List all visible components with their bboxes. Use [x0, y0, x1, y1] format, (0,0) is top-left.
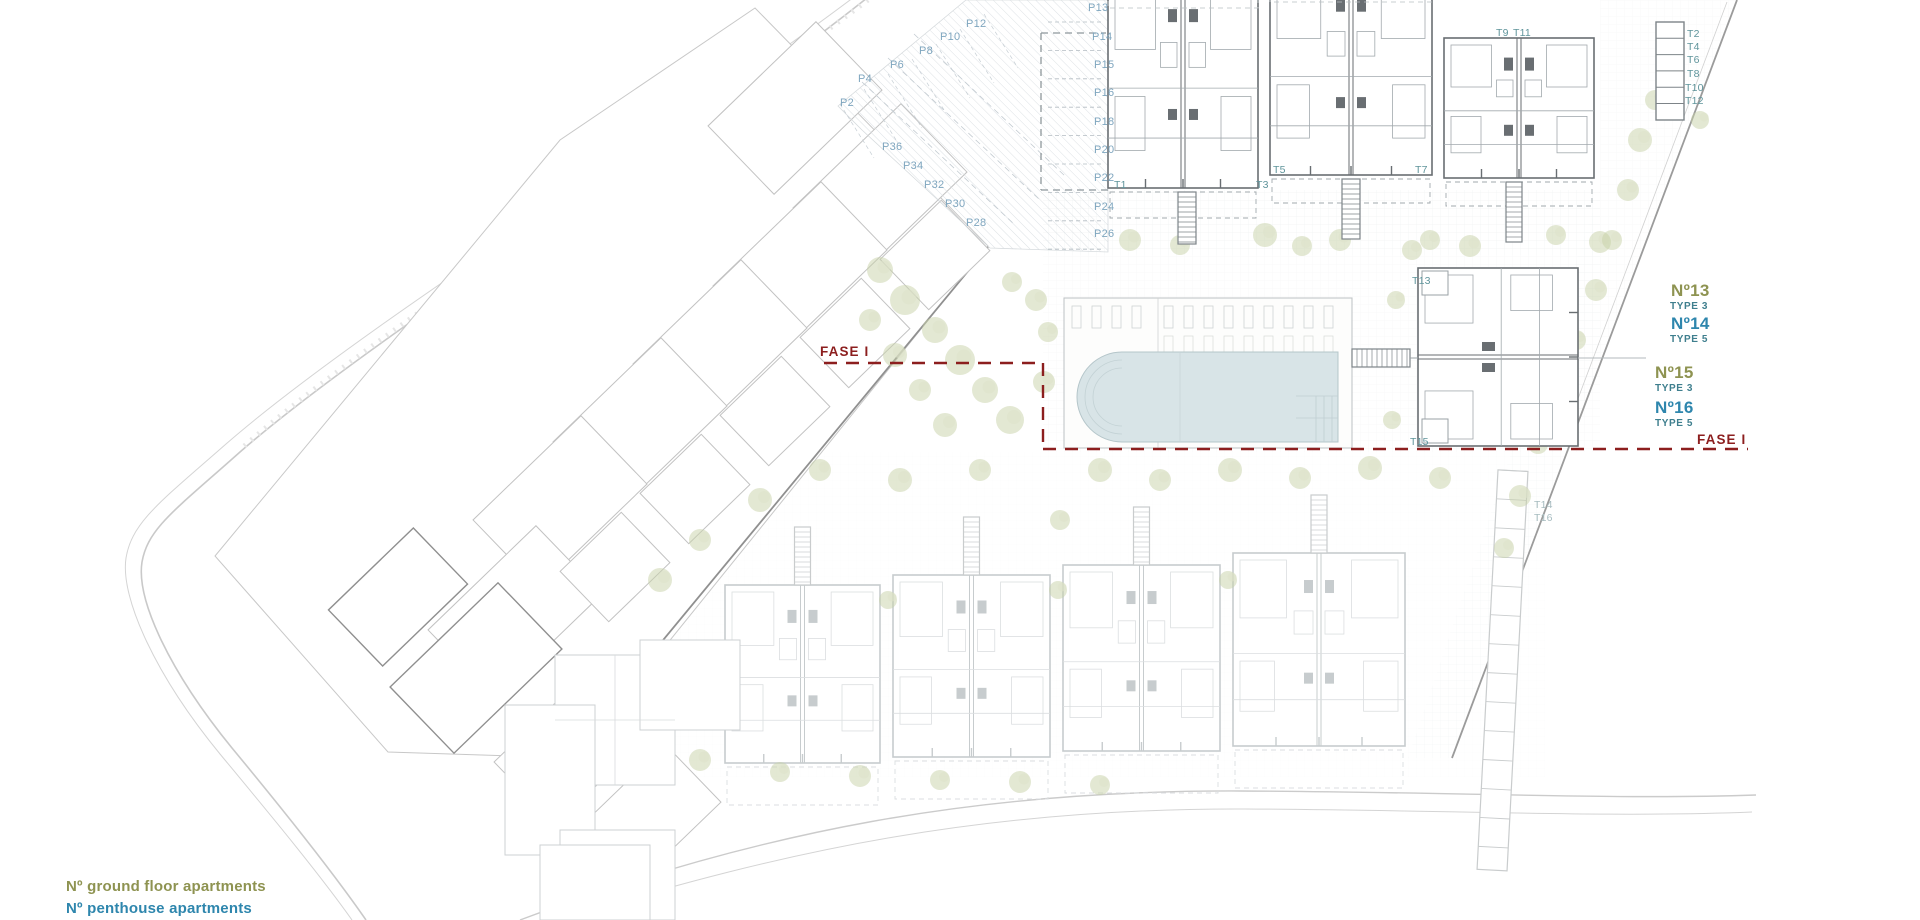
- label-t9: T9: [1496, 27, 1509, 39]
- label-p14: P14: [1092, 31, 1112, 43]
- legend-ground-floor: Nº ground floor apartments: [66, 876, 266, 898]
- label-p28: P28: [966, 217, 986, 229]
- label-t16: T16: [1534, 512, 1553, 524]
- label-type-3: TYPE 3: [1655, 383, 1693, 394]
- stair-tower: [1311, 495, 1327, 553]
- storage-lockers-top: [1656, 22, 1684, 120]
- label-p30: P30: [945, 198, 965, 210]
- label-t13: T13: [1412, 275, 1431, 287]
- label-n-15: Nº15: [1655, 363, 1694, 382]
- label-p18: P18: [1094, 116, 1114, 128]
- label-p8: P8: [919, 45, 933, 57]
- stair-tower: [795, 527, 811, 585]
- label-t2: T2: [1687, 28, 1700, 40]
- label-type-5: TYPE 5: [1670, 334, 1708, 345]
- label-t6: T6: [1687, 54, 1700, 66]
- label-type-3: TYPE 3: [1670, 301, 1708, 312]
- label-p15: P15: [1094, 59, 1114, 71]
- label-p10: P10: [940, 31, 960, 43]
- site-plan-drawing: P13P14P15P16P18P20P22P24P26P12P10P8P6P4P…: [0, 0, 1920, 920]
- label-t1: T1: [1114, 179, 1127, 191]
- label-n-14: Nº14: [1671, 314, 1710, 333]
- label-t3: T3: [1256, 179, 1269, 191]
- label-t7: T7: [1415, 164, 1428, 176]
- label-t15: T15: [1410, 436, 1429, 448]
- building-t1-t3: [1108, 0, 1258, 218]
- label-fase-i: FASE I: [820, 344, 869, 359]
- label-t12: T12: [1685, 95, 1704, 107]
- label-p26: P26: [1094, 228, 1114, 240]
- label-p20: P20: [1094, 144, 1114, 156]
- legend-penthouse: Nº penthouse apartments: [66, 898, 266, 920]
- pool-area: [1064, 298, 1352, 448]
- label-p13: P13: [1088, 2, 1108, 14]
- building-t9-t11: [1444, 38, 1594, 206]
- label-p32: P32: [924, 179, 944, 191]
- building-t5-t7: [1270, 0, 1432, 203]
- label-t4: T4: [1687, 41, 1700, 53]
- label-t5: T5: [1273, 164, 1286, 176]
- label-n-13: Nº13: [1671, 281, 1710, 300]
- label-p16: P16: [1094, 87, 1114, 99]
- stair-tower: [1342, 179, 1360, 239]
- label-t11: T11: [1513, 27, 1531, 39]
- label-p34: P34: [903, 160, 923, 172]
- stair-tower: [964, 517, 980, 575]
- legend: Nº ground floor apartments Nº penthouse …: [66, 876, 266, 920]
- label-p24: P24: [1094, 201, 1114, 213]
- label-p12: P12: [966, 18, 986, 30]
- label-p6: P6: [890, 59, 904, 71]
- label-p22: P22: [1094, 172, 1114, 184]
- label-t14: T14: [1534, 499, 1553, 511]
- stair-tower: [1506, 182, 1522, 242]
- label-t10: T10: [1685, 82, 1704, 94]
- site-plan-canvas: P13P14P15P16P18P20P22P24P26P12P10P8P6P4P…: [0, 0, 1920, 920]
- label-fase-i: FASE I: [1697, 432, 1746, 447]
- stair-tower: [1178, 192, 1196, 244]
- label-p4: P4: [858, 73, 872, 85]
- label-n-16: Nº16: [1655, 398, 1694, 417]
- stair-tower: [1134, 507, 1150, 565]
- label-type-5: TYPE 5: [1655, 418, 1693, 429]
- stair-tower: [1352, 349, 1410, 367]
- label-p2: P2: [840, 97, 854, 109]
- label-t8: T8: [1687, 68, 1700, 80]
- label-p36: P36: [882, 141, 902, 153]
